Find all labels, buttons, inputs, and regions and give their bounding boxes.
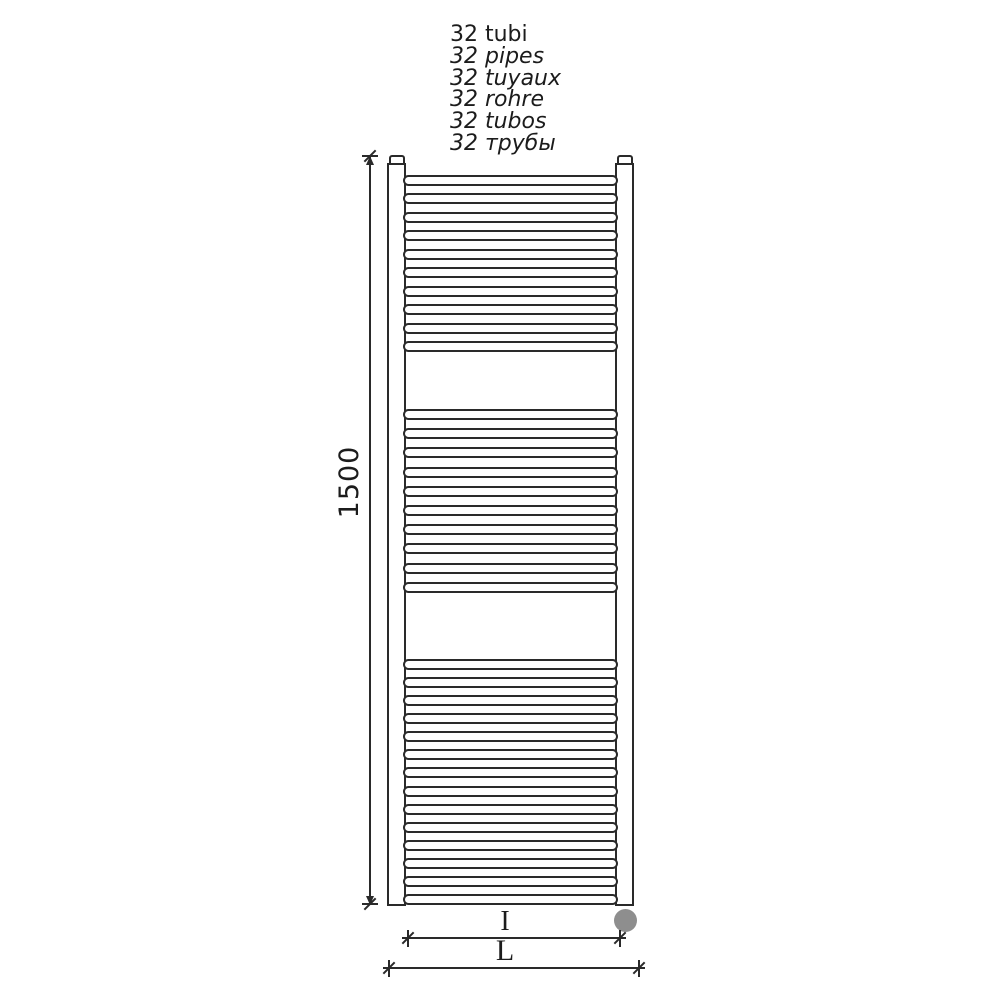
radiator-tube — [403, 230, 618, 241]
radiator-tube — [403, 467, 618, 478]
radiator-tube — [403, 876, 618, 887]
radiator-tube — [403, 505, 618, 516]
radiator-tube — [403, 486, 618, 497]
radiator-tube — [403, 323, 618, 334]
tube-count-label-block: 32 tubi32 pipes32 tuyaux32 rohre32 tubos… — [450, 24, 561, 155]
radiator-tube — [403, 543, 618, 554]
radiator-tube — [403, 286, 618, 297]
radiator-tube — [403, 193, 618, 204]
radiator-tube — [403, 767, 618, 778]
radiator-tube — [403, 677, 618, 688]
radiator-tube — [403, 304, 618, 315]
radiator-tube — [403, 731, 618, 742]
electric-element-dot — [614, 909, 637, 932]
radiator-tube — [403, 428, 618, 439]
tube-count-label: 32 tubi — [450, 24, 561, 46]
technical-diagram-towel-radiator: 32 tubi32 pipes32 tuyaux32 rohre32 tubos… — [0, 0, 1000, 1000]
radiator-tube — [403, 582, 618, 593]
radiator-tube — [403, 409, 618, 420]
radiator-tube — [403, 175, 618, 186]
radiator-tube — [403, 894, 618, 905]
radiator-tube — [403, 695, 618, 706]
radiator-tube — [403, 840, 618, 851]
tube-count-label: 32 pipes — [450, 46, 561, 68]
radiator-tube — [403, 858, 618, 869]
radiator-tube — [403, 804, 618, 815]
radiator-tube — [403, 749, 618, 760]
right-rail — [615, 163, 634, 906]
radiator-tube — [403, 713, 618, 724]
overall-width-dimension-value: L — [490, 934, 520, 968]
radiator-tube — [403, 212, 618, 223]
tube-count-label: 32 tuyaux — [450, 68, 561, 90]
radiator-tube — [403, 786, 618, 797]
radiator-tube — [403, 659, 618, 670]
radiator-tube — [403, 249, 618, 260]
radiator-tube — [403, 822, 618, 833]
dimension-arrow-down — [366, 896, 374, 905]
radiator-tube — [403, 341, 618, 352]
tube-count-label: 32 трубы — [450, 133, 561, 155]
dimension-arrow-up — [366, 156, 374, 165]
radiator-tube — [403, 563, 618, 574]
radiator-tube — [403, 267, 618, 278]
radiator-tube — [403, 447, 618, 458]
tube-count-label: 32 tubos — [450, 111, 561, 133]
radiator-tube — [403, 524, 618, 535]
tube-count-label: 32 rohre — [450, 89, 561, 111]
height-dimension-line — [369, 156, 371, 904]
height-dimension-value: 1500 — [334, 442, 364, 522]
